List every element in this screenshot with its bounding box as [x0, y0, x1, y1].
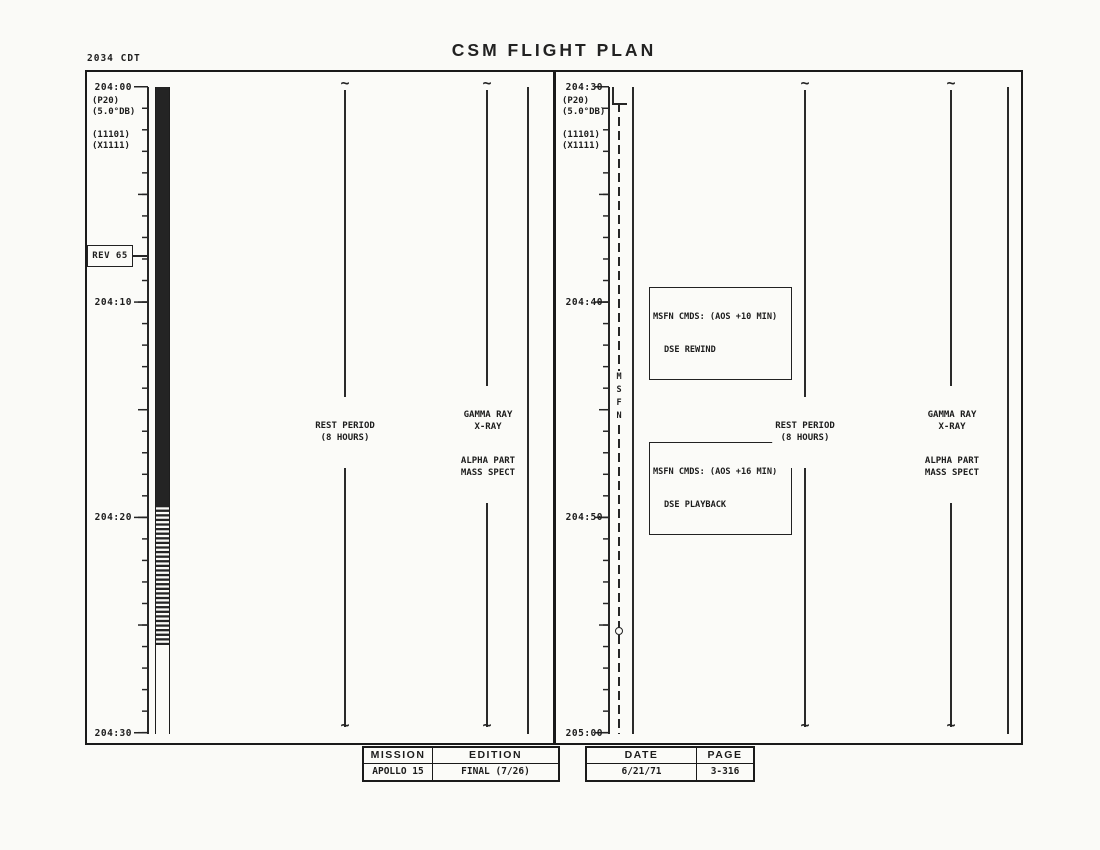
track-line: [527, 87, 529, 734]
continuation-tilde-icon: [478, 718, 496, 732]
edition-value: FINAL (7/26): [432, 764, 558, 780]
time-label: 204:30: [551, 82, 603, 93]
date-value: 6/21/71: [587, 764, 696, 780]
continuation-tilde-icon: [942, 76, 960, 90]
track-line: [632, 87, 634, 734]
msfn-letter: M: [614, 371, 624, 384]
time-label: 204:40: [551, 297, 603, 308]
axis-annotation: (X1111): [562, 141, 600, 153]
page-value: 3-316: [696, 764, 753, 780]
rest-period-label: REST PERIOD(8 HOURS): [772, 397, 838, 468]
time-label: 204:20: [80, 512, 132, 523]
axis-annotation: (5.0°DB): [92, 107, 135, 119]
schedule-bar-solid-segment: [156, 87, 169, 505]
msfn-cmds-callout-1: MSFN CMDS: (AOS +10 MIN) DSE REWIND: [649, 287, 792, 380]
page-title: CSM FLIGHT PLAN: [85, 40, 1023, 61]
msfn-cmds-callout-2: MSFN CMDS: (AOS +16 MIN) DSE PLAYBACK: [649, 442, 792, 535]
continuation-tilde-icon: [336, 76, 354, 90]
schedule-bar-hatched-segment: [156, 505, 169, 645]
msfn-lead-line: [612, 87, 614, 104]
panel-divider: [553, 70, 556, 745]
axis-annotation: (P20): [92, 96, 119, 108]
date-header: DATE: [587, 748, 696, 764]
axis-annotation: (11101): [92, 130, 130, 142]
axis-annotation: (11101): [562, 130, 600, 142]
edition-header: EDITION: [432, 748, 558, 764]
msfn-letter: S: [614, 384, 624, 397]
time-label: 204:50: [551, 512, 603, 523]
continuation-tilde-icon: [796, 76, 814, 90]
mission-edition-table: MISSION EDITION APOLLO 15 FINAL (7/26): [362, 746, 560, 782]
axis-annotation: (X1111): [92, 141, 130, 153]
track-line: [1007, 87, 1009, 734]
rev-badge: REV 65: [87, 245, 133, 267]
time-label: 204:10: [80, 297, 132, 308]
msfn-letter: N: [614, 410, 624, 423]
time-label: 205:00: [551, 728, 603, 739]
mission-value: APOLLO 15: [364, 764, 432, 780]
continuation-tilde-icon: [478, 76, 496, 90]
time-label: 204:30: [80, 728, 132, 739]
msfn-letter: F: [614, 397, 624, 410]
experiments-label: GAMMA RAYX-RAY ALPHA PARTMASS SPECT: [922, 386, 982, 503]
axis-annotation: (5.0°DB): [562, 107, 605, 119]
mission-header: MISSION: [364, 748, 432, 764]
left-axis-ticks: [134, 86, 148, 734]
continuation-tilde-icon: [942, 718, 960, 732]
rest-period-label: REST PERIOD(8 HOURS): [312, 397, 378, 468]
event-circle-marker: [615, 627, 623, 635]
time-label: 204:00: [80, 82, 132, 93]
experiments-label: GAMMA RAYX-RAY ALPHA PARTMASS SPECT: [458, 386, 518, 503]
axis-annotation: (P20): [562, 96, 589, 108]
right-axis-ticks: [595, 86, 609, 734]
date-page-table: DATE PAGE 6/21/71 3-316: [585, 746, 755, 782]
continuation-tilde-icon: [336, 718, 354, 732]
page-header: PAGE: [696, 748, 753, 764]
schedule-bar: [155, 87, 170, 734]
continuation-tilde-icon: [796, 718, 814, 732]
flight-plan-page: 2034 CDT CSM FLIGHT PLAN 204:00 204:10 2…: [0, 0, 1100, 850]
